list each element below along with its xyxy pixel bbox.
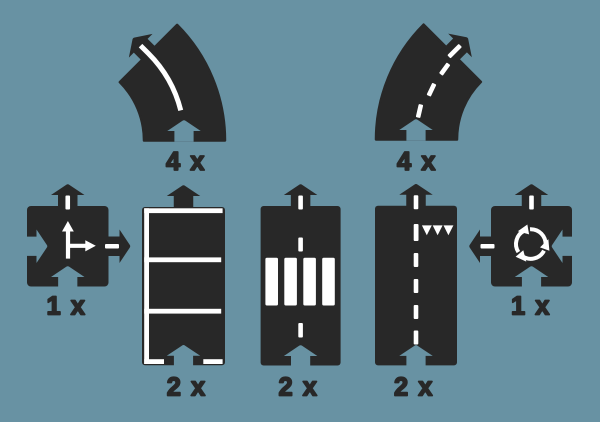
svg-text:4 x: 4 x <box>397 148 437 176</box>
svg-text:1 x: 1 x <box>47 293 87 321</box>
svg-text:1 x: 1 x <box>511 293 551 321</box>
svg-text:2 x: 2 x <box>279 374 319 402</box>
svg-text:2 x: 2 x <box>394 374 434 402</box>
svg-text:4 x: 4 x <box>166 148 206 176</box>
svg-text:2 x: 2 x <box>167 374 207 402</box>
